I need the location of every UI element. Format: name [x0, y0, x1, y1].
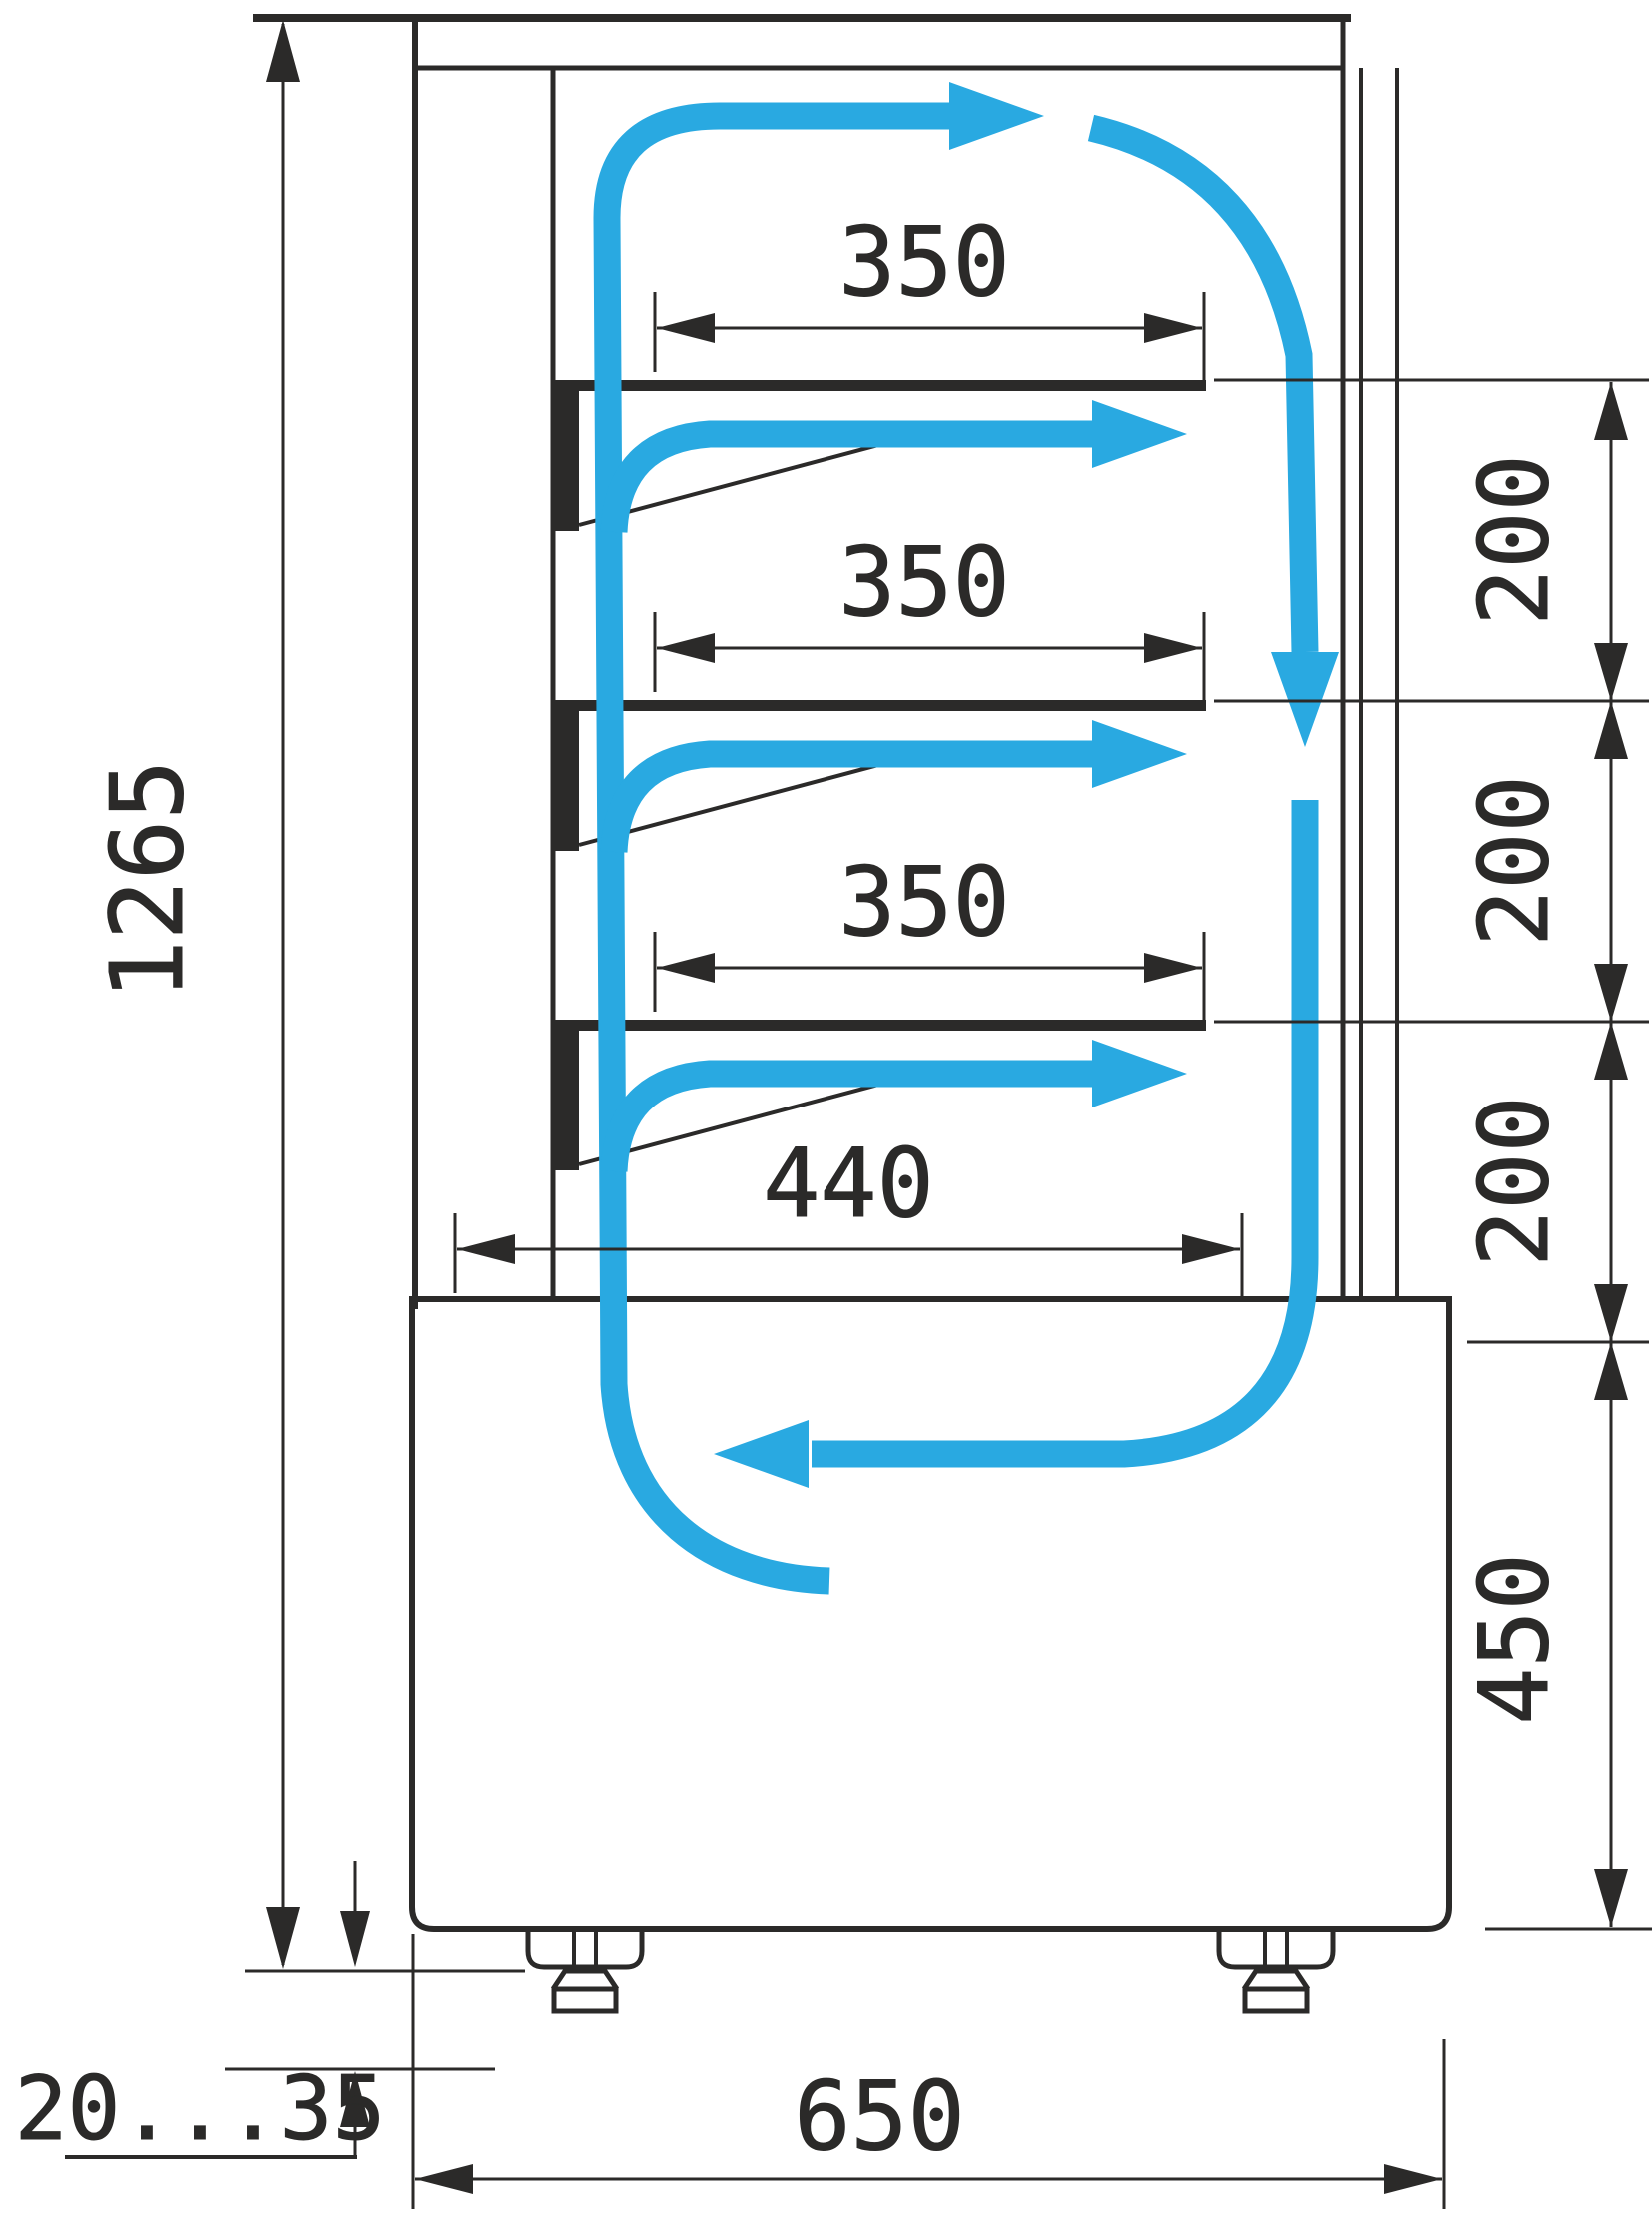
- technical-drawing-page: 1265 350 350 350: [0, 0, 1652, 2214]
- dim-shelf-3-depth-label: 350: [838, 848, 1010, 958]
- dim-shelf-2-depth-label: 350: [838, 528, 1010, 638]
- shelf-3-plate: [553, 1020, 1206, 1031]
- dim-gap-2-label: 200: [1460, 775, 1570, 947]
- shelf-bracket-2: [553, 711, 579, 851]
- shelf-bracket-3: [553, 1031, 579, 1170]
- dim-foot-range-label: 20...35: [15, 2057, 386, 2160]
- dim-gap-3-label: 200: [1460, 1096, 1570, 1267]
- display-case-drawing: 1265 350 350 350: [0, 0, 1652, 2214]
- dim-shelf-1-depth-label: 350: [838, 208, 1010, 318]
- drawing-background: [0, 0, 1652, 2214]
- shelf-1-plate: [553, 380, 1206, 391]
- shelf-bracket-1: [553, 391, 579, 531]
- dim-bottom-shelf-depth-label: 440: [763, 1129, 934, 1239]
- dim-base-height-label: 450: [1460, 1553, 1570, 1725]
- dim-overall-height-label: 1265: [89, 760, 206, 1001]
- shelf-2-plate: [553, 700, 1206, 711]
- dim-overall-depth-label: 650: [794, 2062, 965, 2172]
- dim-gap-1-label: 200: [1460, 454, 1570, 626]
